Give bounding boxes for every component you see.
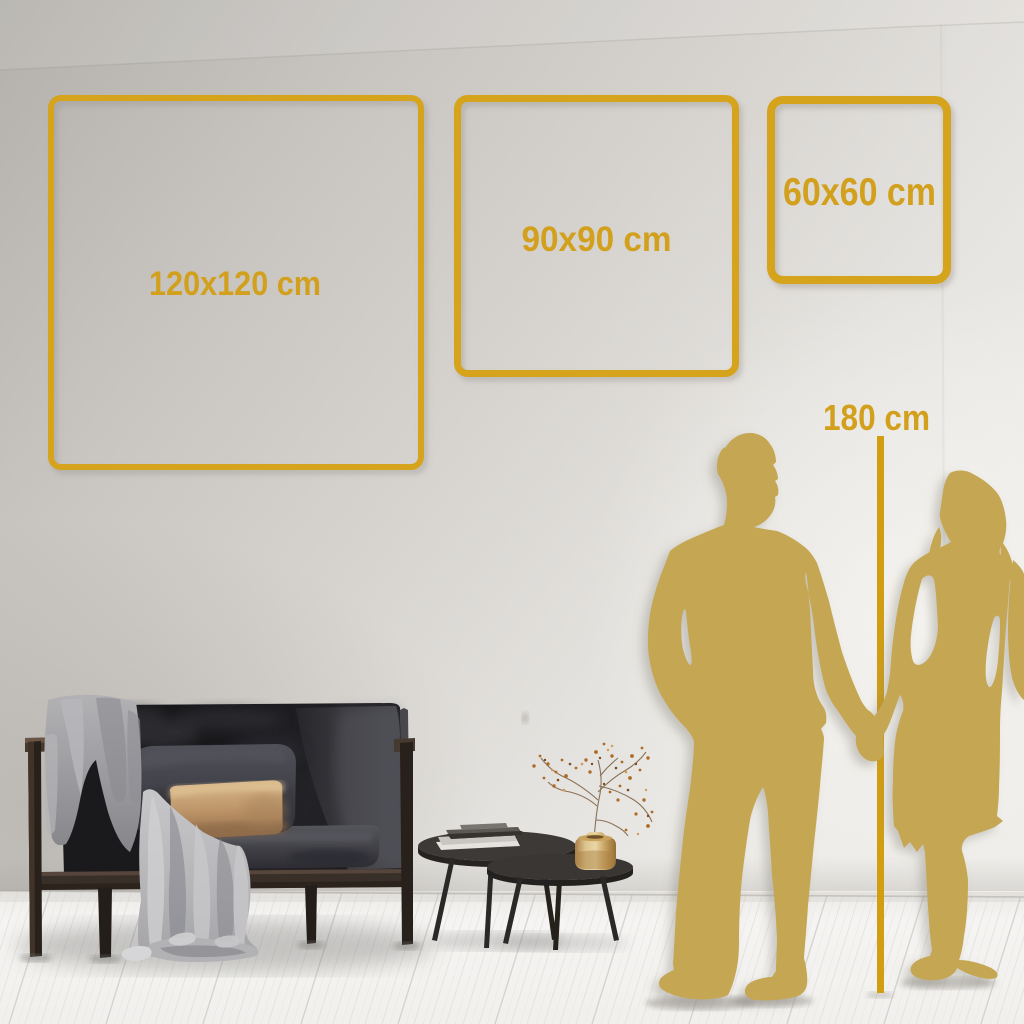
svg-text:120x120 cm: 120x120 cm xyxy=(149,265,321,303)
svg-text:180 cm: 180 cm xyxy=(823,397,930,438)
svg-text:60x60 cm: 60x60 cm xyxy=(783,171,936,214)
svg-text:90x90 cm: 90x90 cm xyxy=(522,219,672,259)
